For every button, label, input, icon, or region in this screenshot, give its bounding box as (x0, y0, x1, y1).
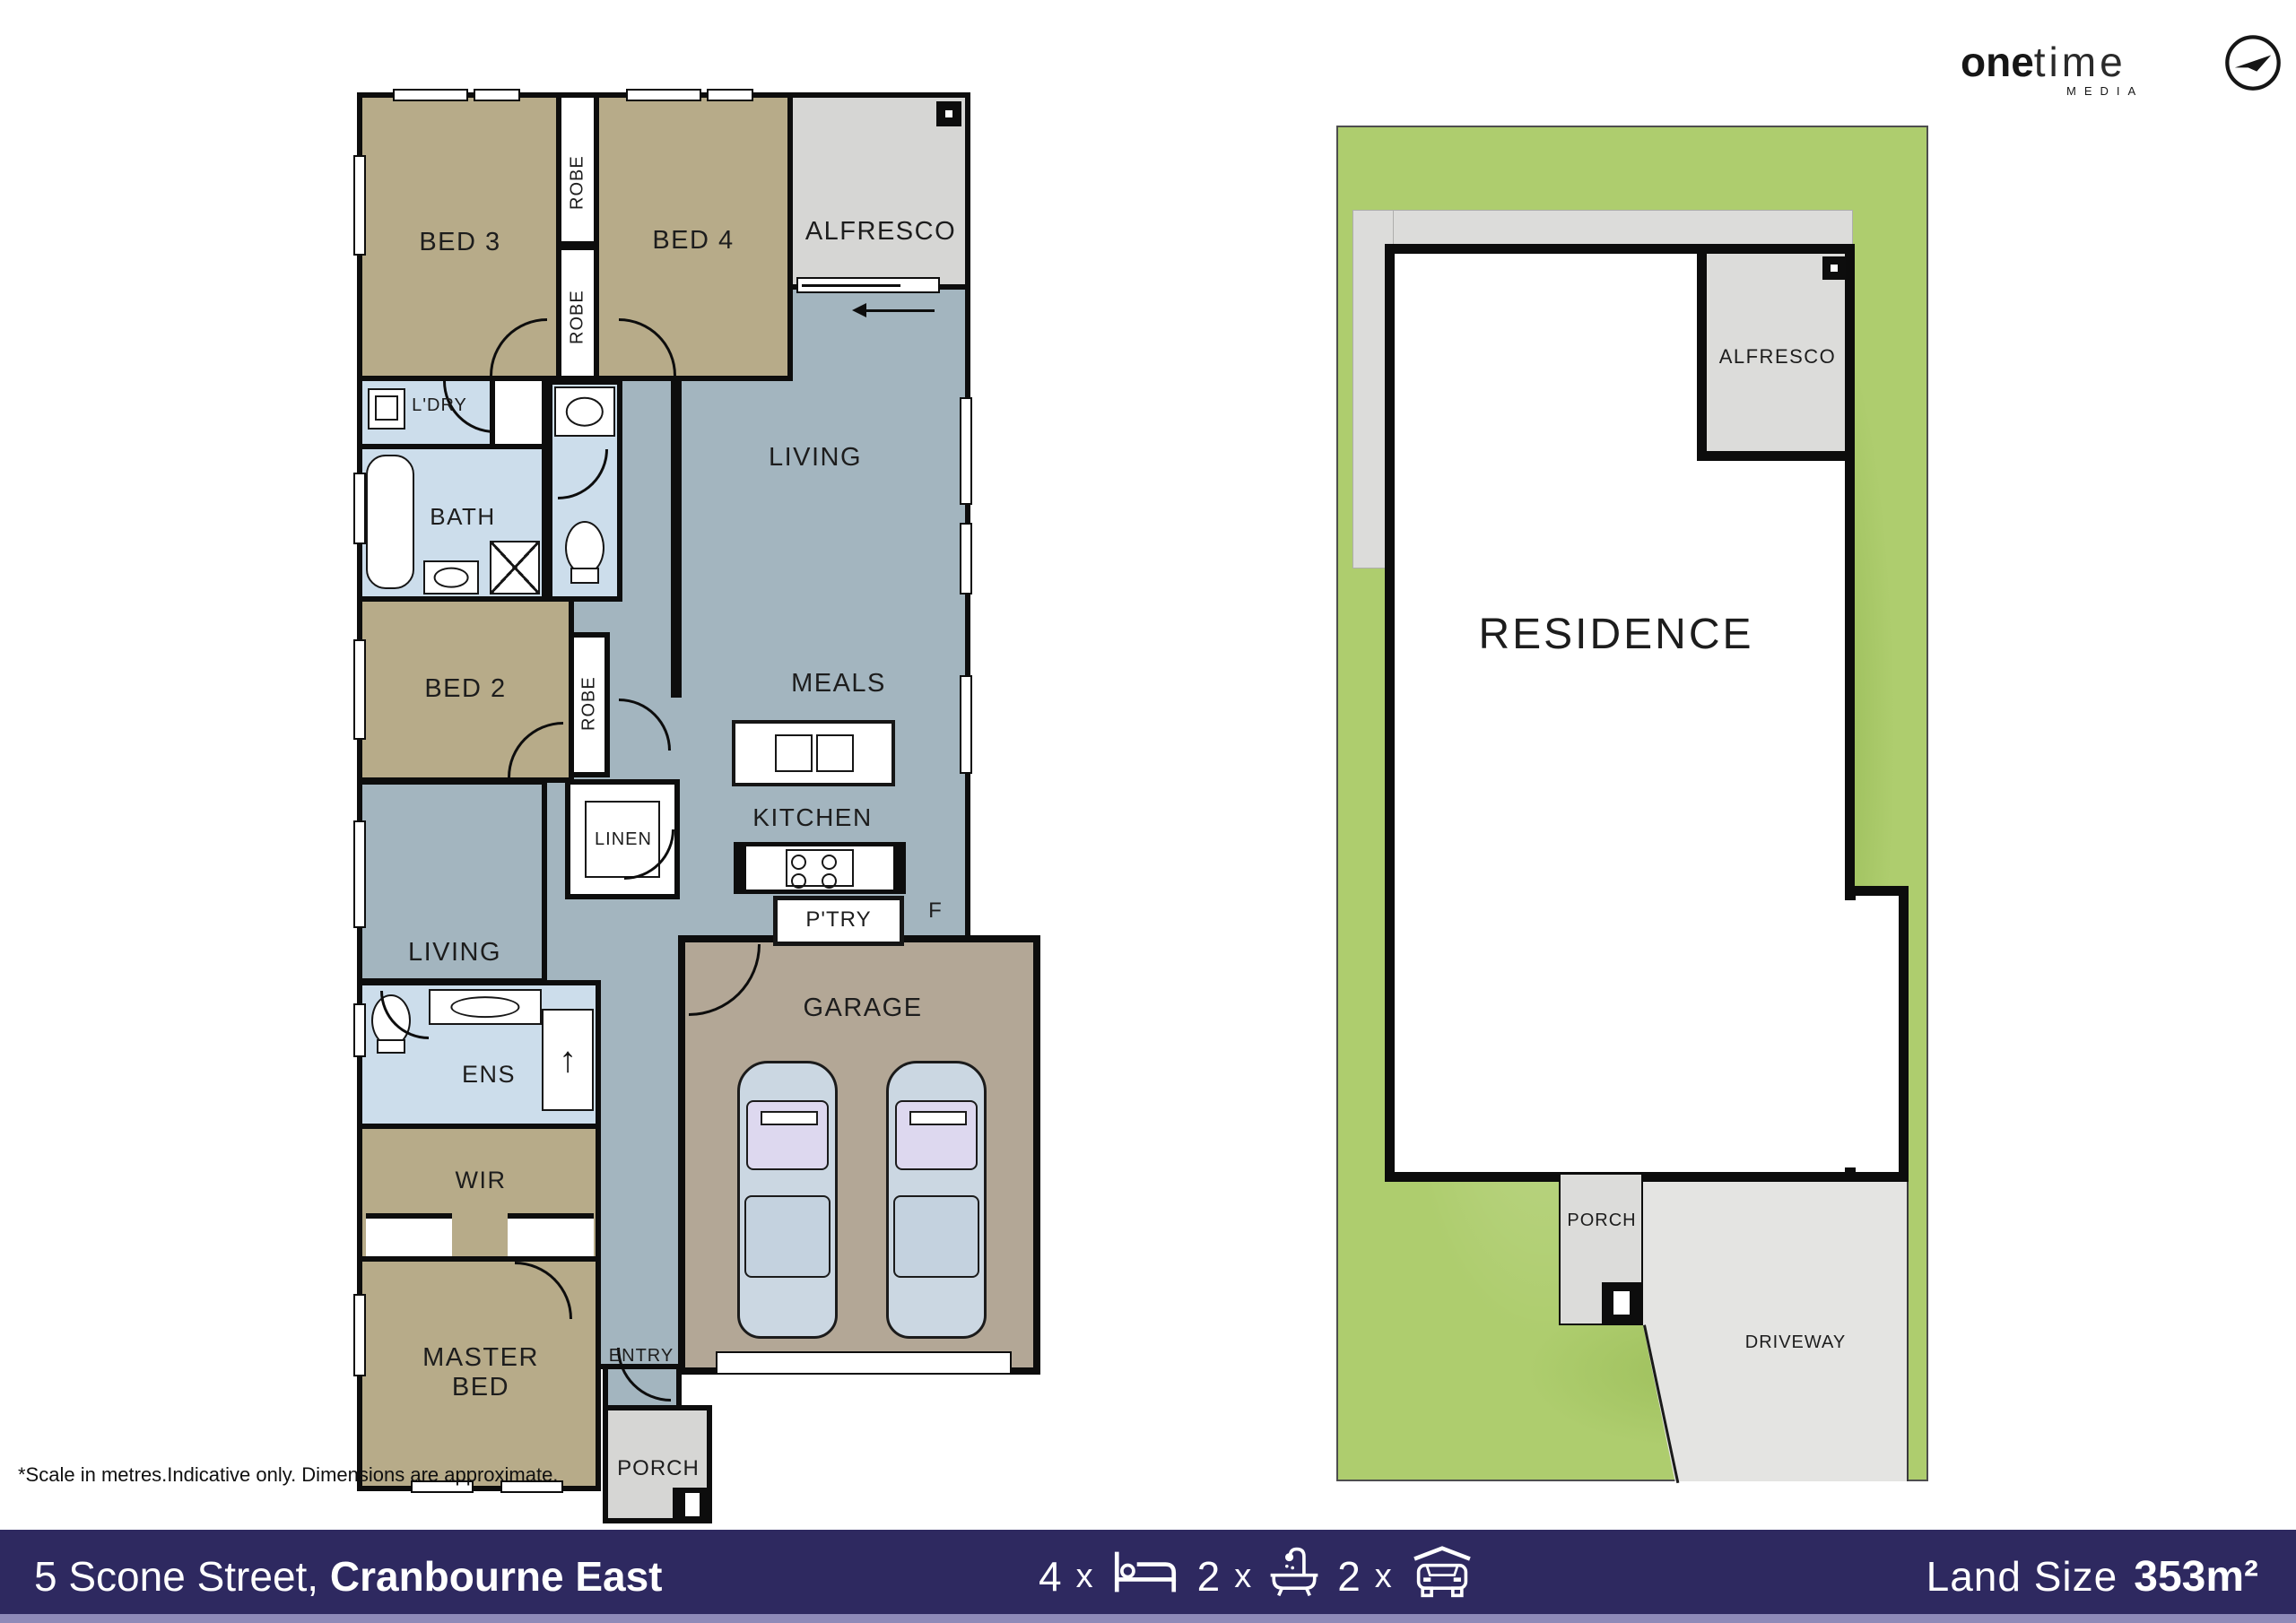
site-porch-door-inner (1613, 1291, 1630, 1315)
logo-word-light: time (2034, 39, 2126, 85)
room-label-meals: MEALS (762, 668, 915, 700)
window (707, 89, 753, 101)
window (353, 639, 366, 740)
logo-word-bold: one (1961, 39, 2034, 85)
property-stats: 4 x 2 x 2 x (1039, 1545, 1478, 1609)
scale-disclaimer: *Scale in metres.Indicative only. Dimens… (18, 1463, 558, 1487)
room-label-master: MASTER BED (409, 1337, 552, 1409)
room-label-ptry: P'TRY (782, 907, 895, 933)
wc-basin (554, 386, 615, 437)
window (393, 89, 468, 101)
room-label-entry: ENTRY (601, 1344, 682, 1367)
room-label-alfresco: ALFRESCO (800, 216, 961, 248)
cars-count: 2 (1337, 1552, 1361, 1601)
site-driveway-right-edge (1907, 1182, 1909, 1481)
room-label-ens: ENS (439, 1061, 538, 1089)
baths-count: 2 (1197, 1552, 1221, 1601)
sliding-door-track (802, 284, 900, 287)
property-address: 5 Scone Street, Cranbourne East (34, 1552, 663, 1601)
onetime-media-logo: onetime MEDIA (1961, 27, 2289, 106)
ens-toilet-tank (377, 1039, 405, 1054)
window (626, 89, 701, 101)
site-label-residence: RESIDENCE (1455, 608, 1778, 662)
window (353, 1294, 366, 1376)
logo-wordmark: onetime (1961, 38, 2126, 86)
window (960, 523, 972, 595)
downpipe-marker-dot (945, 110, 952, 117)
laundry-tub-basin (375, 395, 398, 421)
room-label-garage: GARAGE (773, 993, 952, 1025)
window (353, 1003, 366, 1057)
bath-icon (1265, 1545, 1323, 1609)
room-label-robe: ROBE (570, 650, 608, 758)
room-label-bed4: BED 4 (617, 225, 770, 257)
site-plan: ALFRESCO RESIDENCE PORCH DRIVEWAY (1336, 126, 1928, 1481)
land-size-value: 353m² (2134, 1553, 2258, 1601)
car-graphic (883, 1061, 990, 1339)
beds-multiplier: x (1076, 1558, 1093, 1596)
land-size: Land Size353m² (1926, 1552, 2258, 1601)
room-label-kitchen: KITCHEN (732, 803, 893, 833)
room-label-bath: BATH (418, 503, 508, 532)
room-label-linen: LINEN (583, 828, 664, 851)
beds-count: 4 (1039, 1552, 1062, 1601)
window (353, 473, 366, 544)
site-downpipe-dot (1831, 265, 1838, 272)
footer-bottom-strip (0, 1614, 2296, 1623)
window (353, 820, 366, 928)
room-label-bed2: BED 2 (389, 673, 542, 706)
room-label-robe: ROBE (560, 134, 596, 232)
door-swing-arrow-line (865, 309, 935, 312)
car-graphic (734, 1061, 841, 1339)
footer-bar: 5 Scone Street, Cranbourne East 4 x 2 x (0, 1530, 2296, 1623)
cooktop-icon (786, 849, 854, 887)
floor-plan: ↑ (357, 92, 1065, 1527)
room-label-porch: PORCH (612, 1455, 705, 1482)
wir-recess-left (366, 1213, 452, 1256)
wc-toilet-tank (570, 568, 599, 584)
porch-door-marker-inner (685, 1493, 700, 1516)
room-label-ldry: L'DRY (404, 394, 475, 417)
kitchen-island (732, 720, 895, 786)
window (353, 155, 366, 256)
room-label-bed3: BED 3 (384, 227, 536, 259)
label-fridge: F (922, 898, 949, 924)
garage-door-opening (716, 1351, 1012, 1375)
site-residence-seam-patch (1837, 900, 1865, 1167)
ens-shower: ↑ (542, 1009, 594, 1111)
bath-vanity (423, 560, 479, 595)
room-label-wir: WIR (436, 1167, 526, 1195)
door-swing-arrow-head (852, 303, 866, 317)
site-label-driveway: DRIVEWAY (1715, 1331, 1876, 1354)
kitchen-sink (775, 734, 813, 772)
site-label-alfresco: ALFRESCO (1715, 344, 1840, 369)
hall-wall (671, 379, 682, 698)
address-suburb: Cranbourne East (330, 1553, 663, 1600)
bed-icon (1108, 1547, 1183, 1607)
wir-recess-right (508, 1213, 594, 1256)
logo-subtitle: MEDIA (2066, 84, 2144, 98)
compass-icon (2222, 32, 2283, 98)
land-size-label: Land Size (1926, 1553, 2118, 1600)
address-street: 5 Scone Street, (34, 1553, 330, 1600)
ens-vanity (429, 989, 542, 1025)
site-label-porch: PORCH (1564, 1209, 1639, 1232)
kitchen-sink (816, 734, 854, 772)
robe-divider-wall (556, 241, 599, 250)
window (960, 397, 972, 505)
car-icon (1406, 1545, 1478, 1609)
bathtub (366, 455, 414, 589)
room-label-living-left: LIVING (378, 937, 531, 969)
window (474, 89, 520, 101)
room-label-living: LIVING (739, 442, 891, 474)
wc-toilet (565, 521, 604, 575)
cars-multiplier: x (1375, 1558, 1392, 1596)
room-label-robe: ROBE (560, 268, 596, 367)
baths-multiplier: x (1234, 1558, 1251, 1596)
window (960, 675, 972, 774)
shower (490, 541, 540, 595)
